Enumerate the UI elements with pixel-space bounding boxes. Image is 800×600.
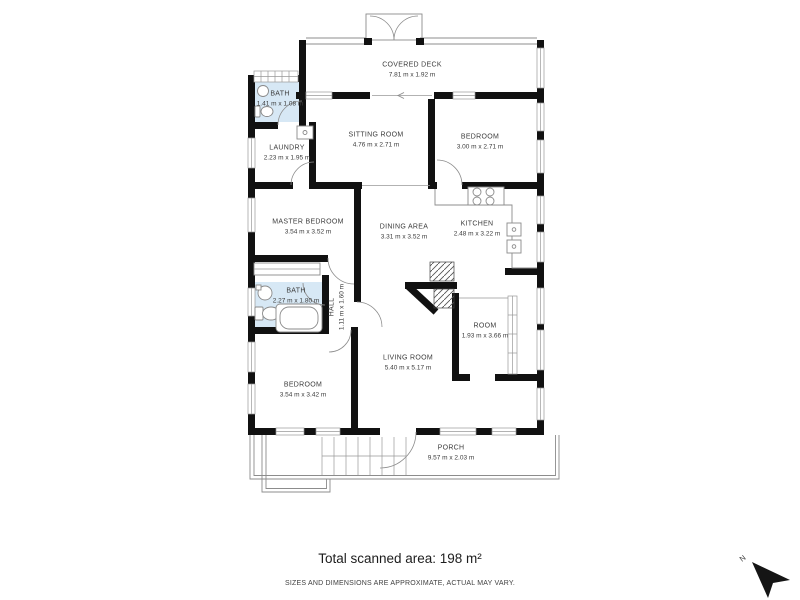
total-area-text: Total scanned area: 198 m² xyxy=(0,551,800,566)
bathtub-icon xyxy=(276,304,322,332)
small-bath-sink-icon xyxy=(258,86,269,97)
closet xyxy=(254,263,320,275)
disclaimer-text: SIZES AND DIMENSIONS ARE APPROXIMATE, AC… xyxy=(0,580,800,587)
deck-double-door xyxy=(366,14,422,40)
floor-plan-page: N COVERED DECK 7.81 m x 1.92 m BATH 1.41… xyxy=(0,0,800,600)
kitchen-sink-icon xyxy=(507,223,521,253)
stove-icon xyxy=(468,187,504,205)
porch-steps xyxy=(322,437,406,475)
room-window-wall xyxy=(508,296,517,374)
floor-plan-drawing: N xyxy=(0,0,800,600)
laundry-sink-icon xyxy=(297,126,313,139)
window-icon xyxy=(254,71,298,82)
small-bath-toilet-icon xyxy=(255,106,273,117)
porch-outline xyxy=(250,435,559,492)
